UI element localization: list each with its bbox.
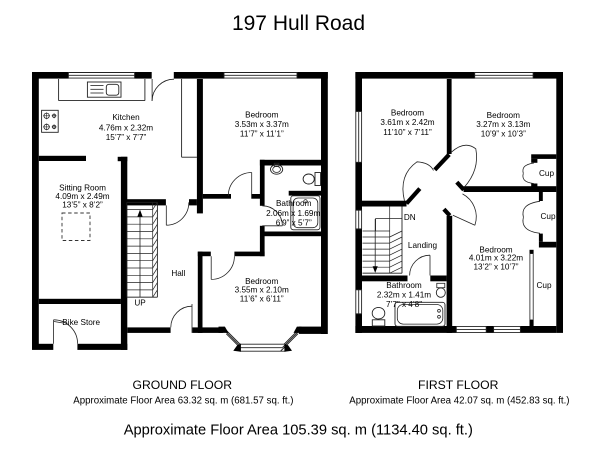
svg-text:Approximate Floor Area 42.07 s: Approximate Floor Area 42.07 sq. m (452.… [349,396,569,407]
svg-text:3.55m x 2.10m: 3.55m x 2.10m [235,286,289,295]
svg-text:15’7” x 7’7”: 15’7” x 7’7” [106,133,147,142]
svg-text:Kitchen: Kitchen [112,113,140,122]
svg-text:7’7” x 4’8”: 7’7” x 4’8” [386,300,422,309]
svg-text:11’10” x 7’11”: 11’10” x 7’11” [383,128,432,137]
svg-text:Bedroom: Bedroom [245,277,278,286]
svg-text:DN: DN [404,213,416,222]
svg-text:13’2” x 10’7”: 13’2” x 10’7” [473,263,518,272]
svg-text:Bedroom: Bedroom [487,111,520,120]
svg-text:3.61m x 2.42m: 3.61m x 2.42m [380,118,434,127]
svg-text:Bike Store: Bike Store [62,318,100,327]
svg-text:Bedroom: Bedroom [245,110,278,119]
svg-text:197 Hull Road: 197 Hull Road [232,12,365,35]
svg-text:Bathroom: Bathroom [386,281,422,290]
svg-text:Bathroom: Bathroom [276,199,312,208]
svg-text:4.01m x 3.22m: 4.01m x 3.22m [469,254,523,263]
svg-text:Approximate Floor Area 105.39: Approximate Floor Area 105.39 sq. m (113… [124,423,473,439]
svg-text:11’6” x 6’11”: 11’6” x 6’11” [240,295,284,304]
svg-text:Hall: Hall [171,269,185,278]
svg-text:Cup: Cup [539,169,554,178]
svg-text:GROUND FLOOR: GROUND FLOOR [133,378,233,392]
svg-text:Bedroom: Bedroom [391,108,424,117]
svg-text:Cup: Cup [540,212,555,221]
svg-text:2.32m x 1.41m: 2.32m x 1.41m [377,291,431,300]
svg-text:Cup: Cup [536,281,551,290]
svg-text:4.76m x 2.32m: 4.76m x 2.32m [99,123,153,132]
svg-text:10’9” x 10’3”: 10’9” x 10’3” [481,129,526,138]
svg-text:UP: UP [134,298,146,307]
svg-text:2.06m x 1.69m: 2.06m x 1.69m [266,209,320,218]
svg-text:13’5” x 8’2”: 13’5” x 8’2” [62,201,103,210]
svg-text:3.27m x 3.13m: 3.27m x 3.13m [476,120,530,129]
svg-text:Approximate Floor Area 63.32 s: Approximate Floor Area 63.32 sq. m (681.… [73,395,293,406]
svg-text:6’9” x 5’7”: 6’9” x 5’7” [276,218,312,227]
svg-text:Landing: Landing [408,241,438,250]
svg-text:FIRST FLOOR: FIRST FLOOR [418,378,499,392]
svg-text:11’7” x 11’1”: 11’7” x 11’1” [240,129,284,138]
svg-text:3.53m x 3.37m: 3.53m x 3.37m [235,120,289,129]
